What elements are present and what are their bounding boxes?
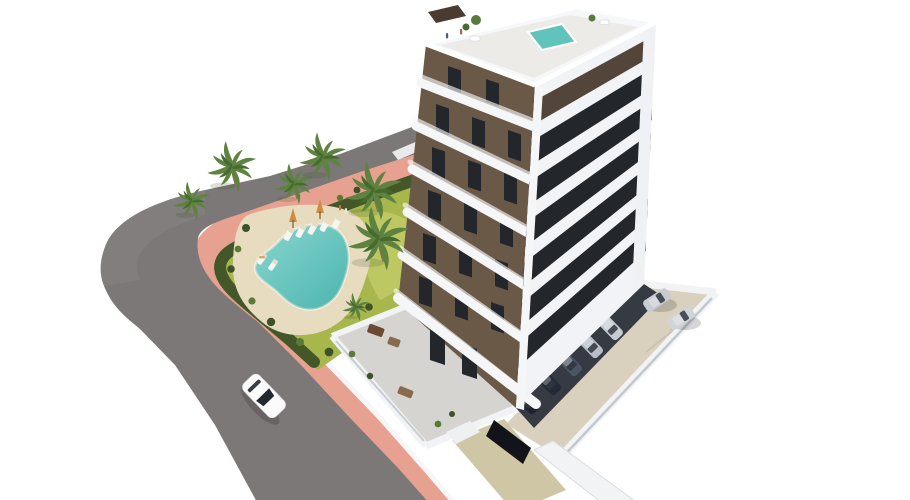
shrub (227, 265, 235, 273)
terrace-plant (349, 351, 356, 358)
terrace-plant (367, 373, 373, 379)
architectural-render (0, 0, 910, 500)
shrub (365, 303, 373, 311)
window (419, 276, 432, 308)
window (472, 117, 485, 149)
shrub (235, 246, 242, 253)
rooftop-furniture (600, 20, 609, 25)
rooftop-plant (463, 24, 470, 31)
person (339, 205, 341, 211)
rooftop-plant (471, 15, 481, 25)
person (446, 33, 448, 39)
shrub (354, 187, 361, 194)
shrub (296, 338, 304, 346)
shrub (242, 224, 250, 232)
person-lying (259, 256, 265, 258)
shrub (248, 297, 255, 304)
shrub (337, 195, 343, 201)
shrub (267, 318, 275, 326)
window (423, 233, 436, 265)
rooftop-pergola (428, 5, 466, 23)
person (345, 208, 347, 214)
shrub (325, 348, 334, 357)
terrace-plant (449, 411, 455, 417)
terrace-plant (435, 421, 442, 428)
window (428, 190, 441, 222)
rooftop-furniture (470, 36, 480, 41)
person (460, 29, 462, 35)
render-canvas (0, 0, 910, 500)
window (468, 160, 481, 192)
rooftop-plant (589, 15, 596, 22)
window (508, 130, 521, 162)
